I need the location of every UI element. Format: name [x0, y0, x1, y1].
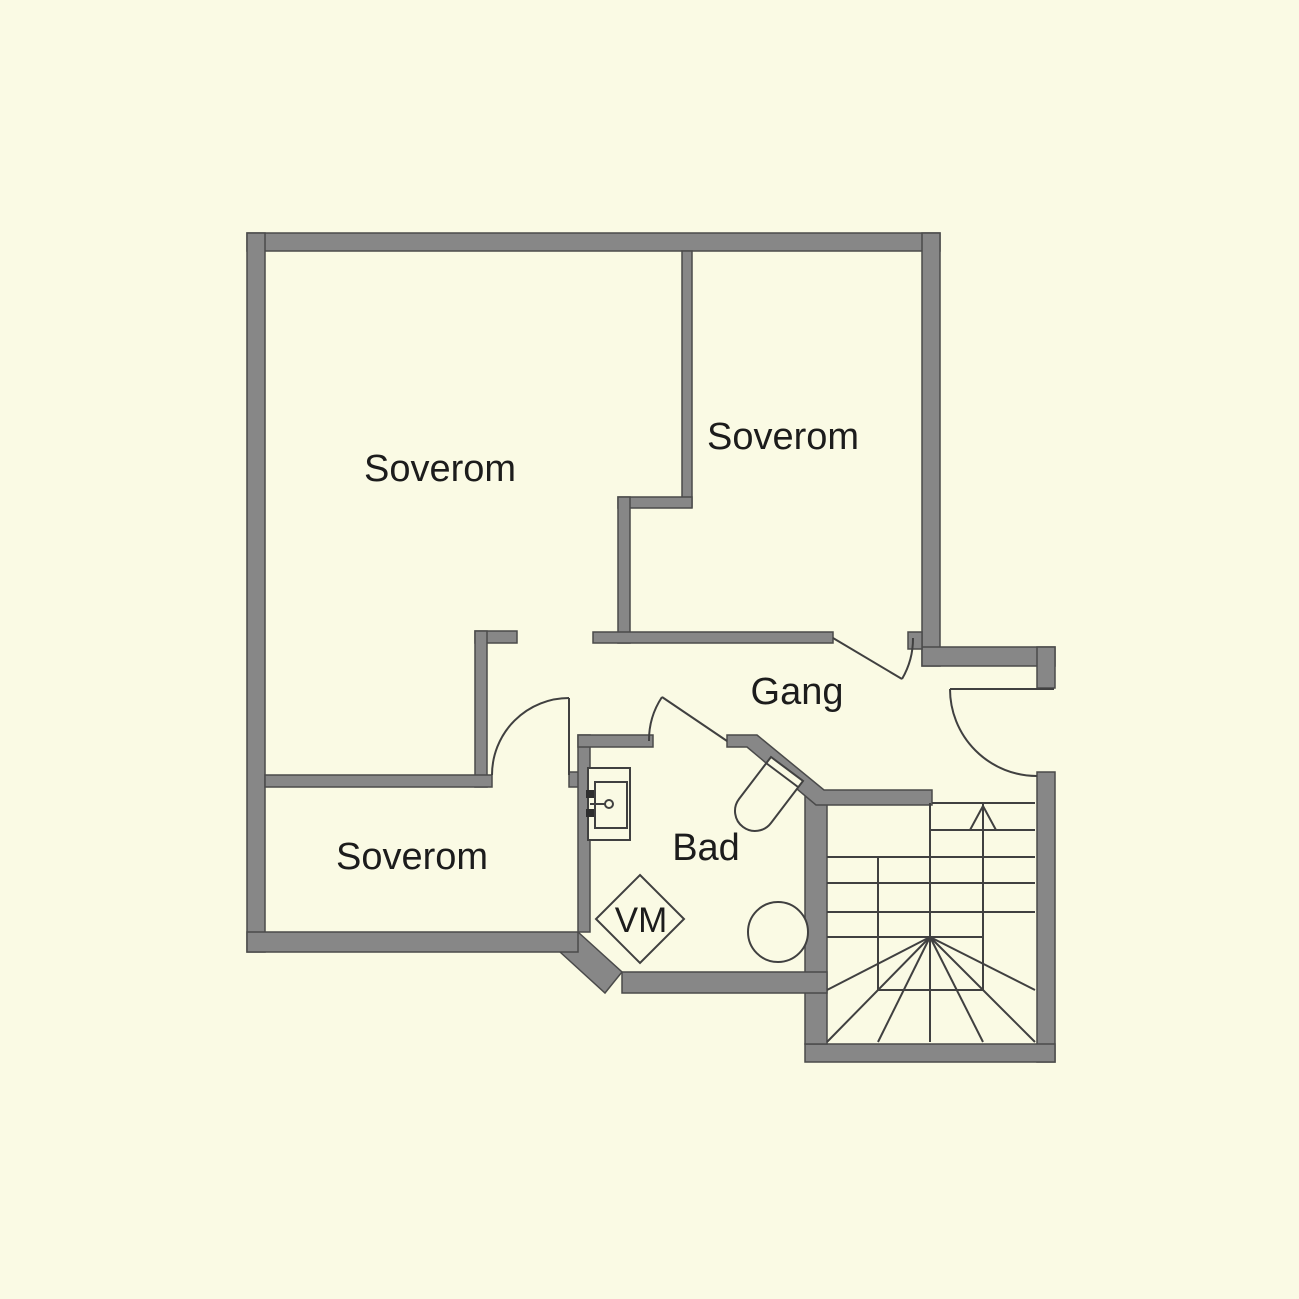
door-lower-bedroom	[492, 698, 569, 775]
wall-bedroom-divider-lower	[618, 497, 630, 643]
sink-tap-head	[605, 800, 613, 808]
door-bathroom	[649, 697, 727, 741]
wall-entry-jamb	[1037, 647, 1055, 688]
sink-valve	[586, 809, 594, 817]
wall-bath-north	[578, 735, 653, 747]
wall-bigroom-bottom	[265, 775, 492, 787]
wall-bottom-stairs	[805, 1044, 1055, 1062]
wall-bath-bottom	[622, 972, 827, 993]
staircase	[827, 803, 1035, 1042]
wall-extension-top	[922, 647, 1055, 666]
wall-right-lower	[1037, 772, 1055, 1062]
door-entry	[950, 689, 1054, 776]
room-label-bad: Bad	[672, 827, 740, 869]
door-swing-arc	[950, 689, 1037, 776]
sink-valve	[586, 790, 594, 798]
wall-door-jamb-right-bedroom	[908, 632, 922, 649]
washing-machine-icon: VM	[596, 875, 684, 963]
floor-plan-svg: VM Soverom Soverom Soverom Gang Bad	[0, 0, 1299, 1299]
door-leaf	[662, 697, 727, 741]
wall-bottom-left	[247, 932, 578, 952]
room-label-soverom-right: Soverom	[707, 416, 859, 458]
wall-stairs-west	[805, 792, 827, 1044]
wall-gang-north	[593, 632, 833, 643]
stair-winder-fan	[827, 937, 1035, 1042]
door-swing-arc	[492, 698, 569, 775]
wall-top	[247, 233, 940, 251]
wall-right-upper	[922, 233, 940, 666]
floor-plan-page: VM Soverom Soverom Soverom Gang Bad	[0, 0, 1299, 1299]
sink-icon	[586, 768, 630, 840]
room-label-gang: Gang	[751, 671, 844, 713]
wall-bedroom-divider-upper	[682, 251, 692, 507]
room-label-soverom-large: Soverom	[364, 448, 516, 490]
door-right-bedroom	[833, 638, 913, 679]
washing-machine-label: VM	[615, 901, 668, 940]
wall-left	[247, 233, 265, 952]
shower-drain-icon	[748, 902, 808, 962]
wall-nook-west	[475, 631, 487, 787]
room-label-soverom-lower: Soverom	[336, 836, 488, 878]
